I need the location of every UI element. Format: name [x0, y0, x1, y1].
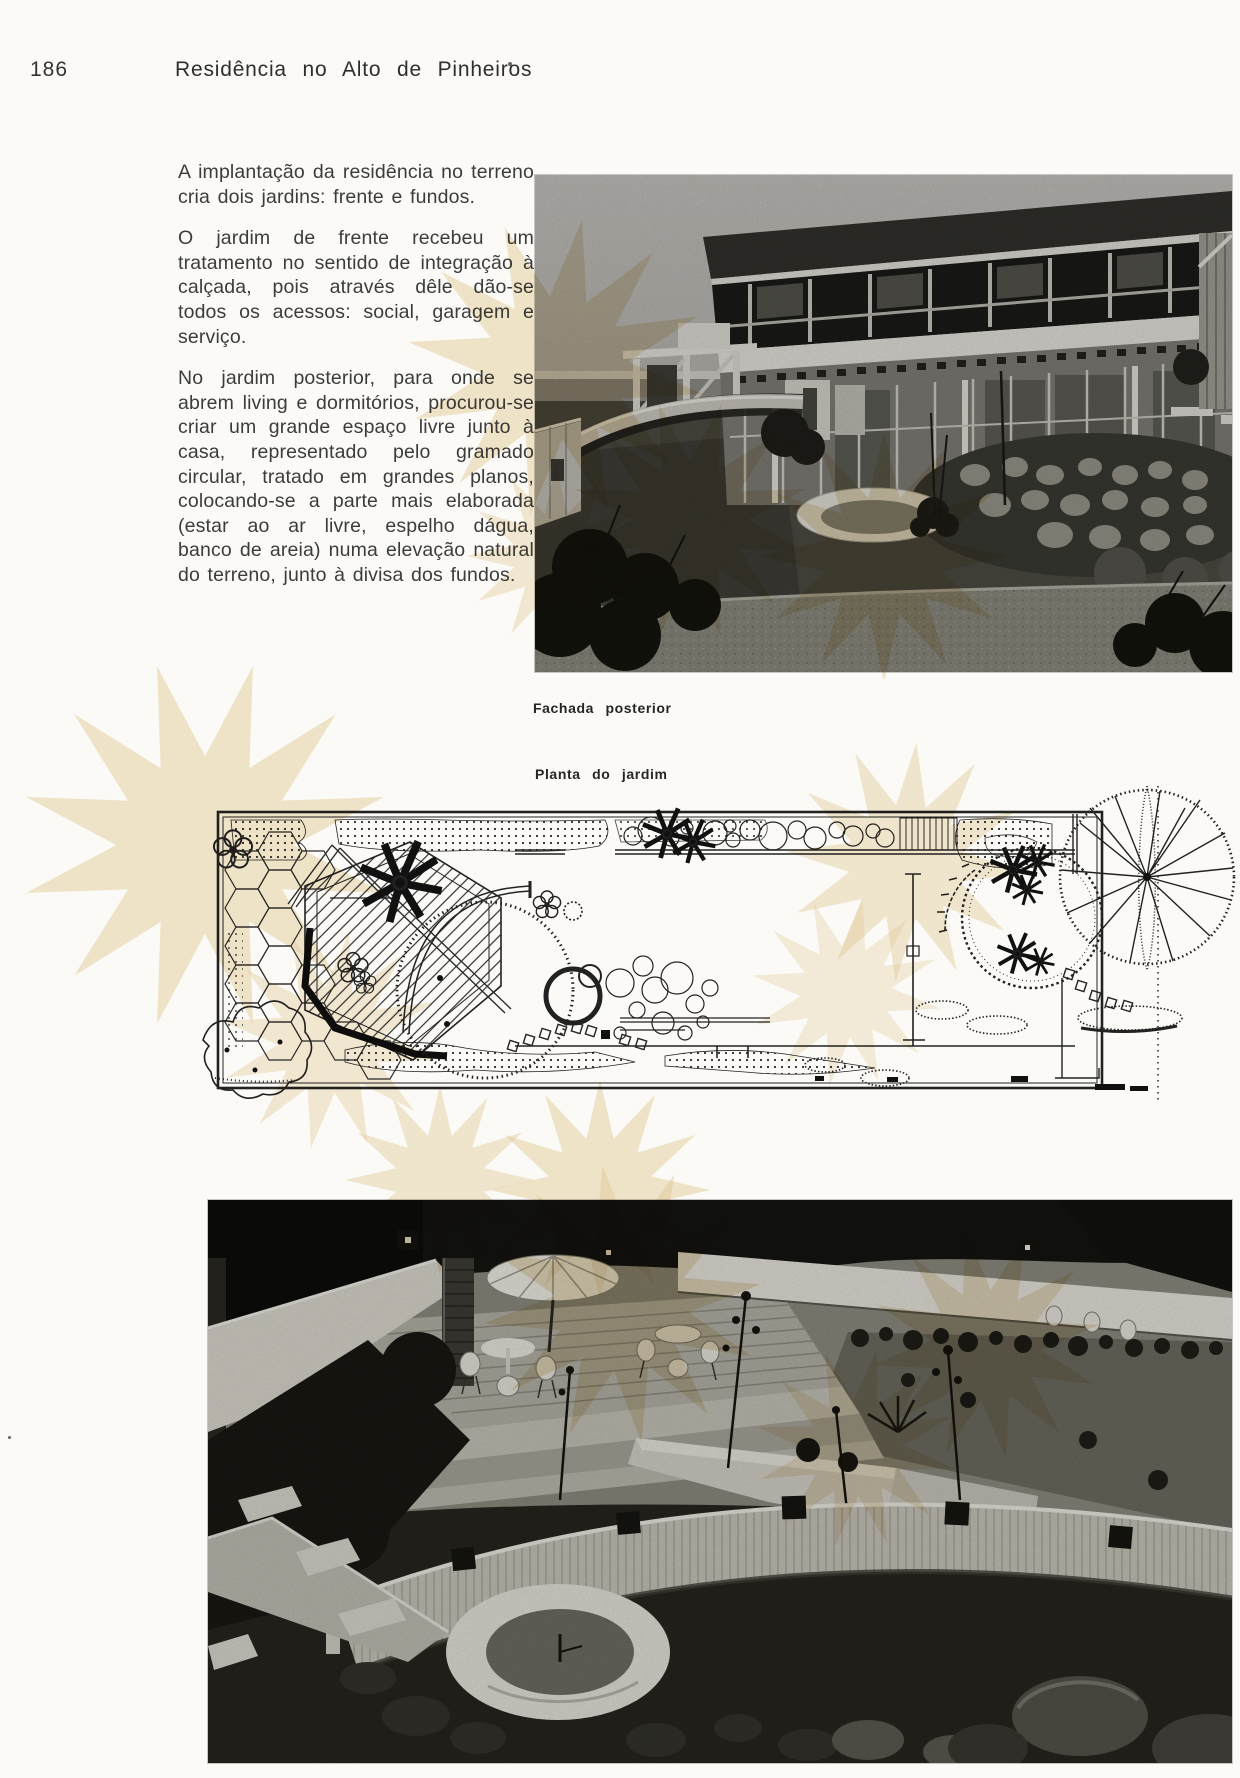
body-paragraph: A implantação da residência no terreno c…: [178, 160, 534, 209]
garden-photo-graphic: [208, 1200, 1232, 1763]
body-paragraph: No jardim posterior, para onde se abrem …: [178, 366, 534, 587]
scan-speck: [508, 62, 512, 66]
page-title: Residência no Alto de Pinheiros: [175, 58, 532, 82]
article-text: A implantação da residência no terreno c…: [178, 160, 534, 605]
scanned-page: 186 Residência no Alto de Pinheiros A im…: [0, 0, 1240, 1778]
garden-plan-drawing: [185, 778, 1240, 1112]
scan-speck: [8, 1436, 11, 1439]
garden-photo: [208, 1200, 1232, 1763]
facade-caption: Fachada posterior: [533, 700, 672, 716]
facade-photo: [535, 175, 1232, 672]
body-paragraph: O jardim de frente recebeu um tratamento…: [178, 226, 534, 349]
facade-photo-graphic: [535, 175, 1232, 672]
page-number: 186: [30, 58, 68, 82]
